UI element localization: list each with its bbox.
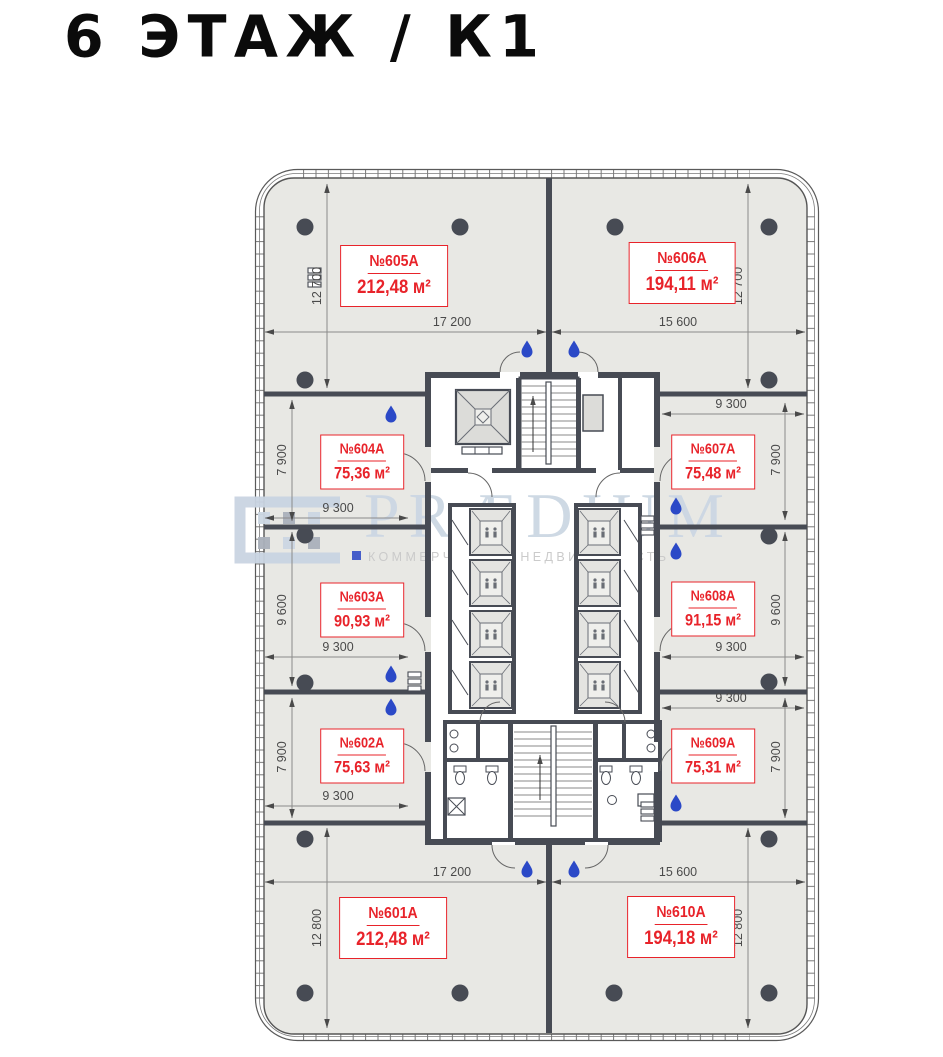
dimension-label: 17 200 [433,315,471,329]
unit-number: №604А [338,443,386,462]
column-marker [761,372,778,389]
unit-area: 90,93 м² [334,613,390,630]
dimension-label: 7 900 [769,444,783,475]
column-marker [297,675,314,692]
restrooms-and-stairs-bottom [445,722,660,840]
unit-area: 75,63 м² [334,759,390,776]
dimension-label: 9 300 [715,640,746,654]
unit-area: 212,48 м² [357,278,431,297]
watermark-bullet [352,551,361,560]
unit-label-601a: №601А 212,48 м² [339,897,447,959]
column-marker [297,372,314,389]
unit-area: 194,18 м² [644,929,718,948]
unit-number: №608А [689,590,737,609]
dimension-label: 9 300 [715,691,746,705]
column-marker [761,528,778,545]
column-marker [607,219,624,236]
dimension-label: 9 300 [322,501,353,515]
unit-area: 91,15 м² [685,612,741,629]
column-marker [452,219,469,236]
dimension-label: 9 300 [322,789,353,803]
unit-label-606a: №606А 194,11 м² [629,242,736,304]
unit-area: 75,31 м² [685,759,741,776]
unit-label-607a: №607А 75,48 м² [671,435,755,490]
unit-label-604a: №604А 75,36 м² [320,435,404,490]
facade-mullions-top [298,170,750,178]
dimension-label: 17 200 [433,865,471,879]
column-marker [606,985,623,1002]
unit-label-609a: №609А 75,31 м² [671,729,755,784]
unit-label-605a: №605А 212,48 м² [340,245,448,307]
column-marker [297,831,314,848]
unit-area: 75,36 м² [334,465,390,482]
dimension-label: 12 700 [310,267,324,305]
unit-number: №606А [656,251,709,271]
dimension-label: 9 600 [275,594,289,625]
dimension-label: 9 300 [322,640,353,654]
riser-icon [641,802,654,821]
unit-label-608a: №608А 91,15 м² [671,582,755,637]
column-marker [761,831,778,848]
elevator-shaft-top [456,390,510,454]
unit-area: 212,48 м² [356,930,430,949]
wall-top-divider [546,178,552,372]
facade-mullions-right [807,215,815,1000]
column-marker [761,219,778,236]
dimension-label: 9 300 [715,397,746,411]
column-marker [452,985,469,1002]
unit-label-603a: №603А 90,93 м² [320,583,404,638]
dimension-label: 7 900 [275,444,289,475]
watermark-brand: PRÆDIUM [364,480,733,551]
unit-label-610a: №610А 194,18 м² [627,896,735,958]
dimension-label: 15 600 [659,315,697,329]
unit-number: №601А [367,906,420,926]
unit-number: №603А [338,591,386,610]
dimension-label: 7 900 [275,741,289,772]
unit-number: №609А [689,737,737,756]
unit-area: 194,11 м² [646,275,719,294]
unit-number: №610А [655,905,708,925]
dimension-label: 15 600 [659,865,697,879]
column-marker [297,985,314,1002]
dimension-label: 9 600 [769,594,783,625]
riser-icon [408,672,421,691]
dimension-label: 7 900 [769,741,783,772]
unit-number: №605А [368,254,421,274]
riser-icon [641,516,654,535]
column-marker [761,674,778,691]
column-marker [297,219,314,236]
unit-number: №602А [338,737,386,756]
elevator-bank-right [576,505,640,712]
floor-plan-page: 6 ЭТАЖ / К1 [0,0,943,1057]
stairs-top [520,378,578,470]
column-marker [761,985,778,1002]
dimension-label: 12 800 [310,909,324,947]
unit-area: 75,48 м² [685,465,741,482]
wall-bottom-divider [546,845,552,1033]
elevator-bank-left [450,505,514,712]
column-marker [297,527,314,544]
unit-label-602a: №602А 75,63 м² [320,729,404,784]
unit-number: №607А [689,443,737,462]
facade-mullions-left [256,215,264,1000]
floor-plan-svg: PRÆDIUM КОММЕРЧЕСКАЯ НЕДВИЖИМОСТЬ [0,0,943,1057]
